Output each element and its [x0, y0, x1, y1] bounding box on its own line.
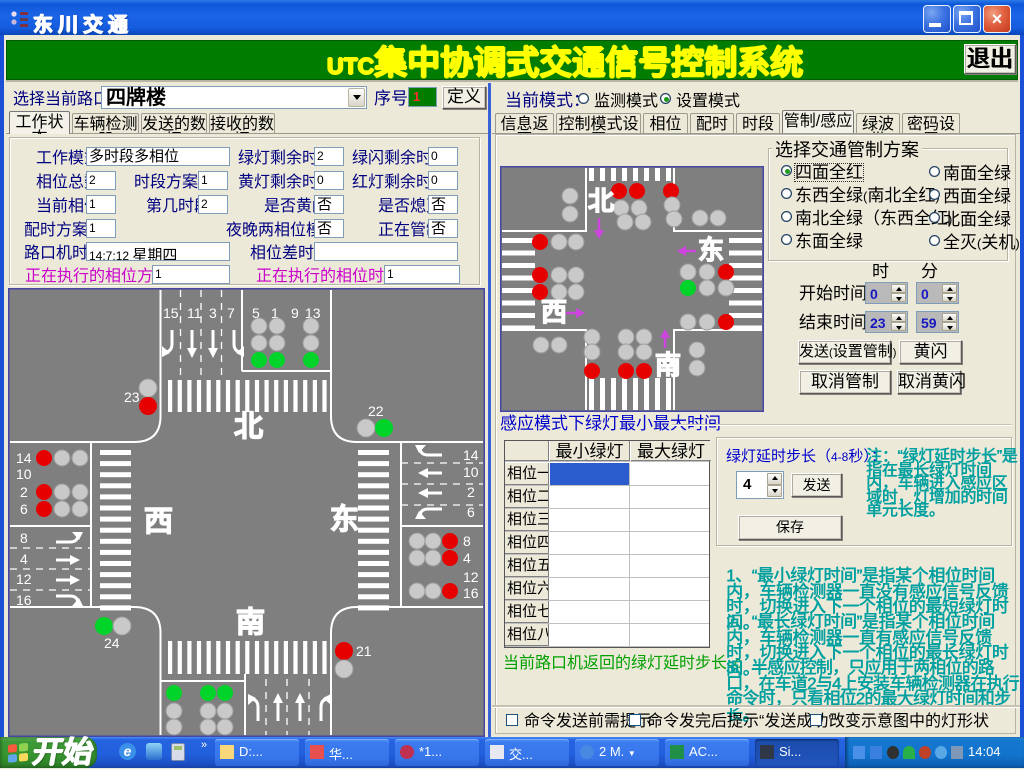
svg-text:12: 12	[463, 569, 479, 585]
svg-text:16: 16	[16, 592, 32, 608]
svg-text:10: 10	[463, 464, 479, 480]
svg-text:东: 东	[330, 502, 359, 536]
svg-text:北: 北	[588, 186, 614, 216]
svg-text:8: 8	[463, 533, 471, 549]
svg-text:2: 2	[20, 484, 28, 500]
svg-text:北: 北	[234, 410, 263, 443]
svg-text:22: 22	[368, 403, 384, 419]
svg-text:西: 西	[144, 506, 173, 538]
svg-text:23: 23	[124, 389, 140, 405]
svg-text:3: 3	[209, 305, 217, 321]
svg-text:4: 4	[463, 550, 471, 566]
svg-text:6: 6	[20, 501, 28, 517]
svg-text:14: 14	[16, 450, 32, 466]
svg-text:15: 15	[163, 305, 179, 321]
svg-text:6: 6	[467, 504, 475, 520]
svg-text:7: 7	[227, 305, 235, 321]
svg-text:8: 8	[20, 530, 28, 546]
svg-text:10: 10	[16, 466, 32, 482]
svg-text:21: 21	[356, 643, 372, 659]
svg-text:南: 南	[236, 606, 265, 639]
svg-text:12: 12	[16, 571, 32, 587]
svg-text:东: 东	[698, 235, 724, 265]
svg-text:16: 16	[463, 585, 479, 601]
svg-text:14: 14	[463, 447, 479, 463]
svg-text:2: 2	[467, 484, 475, 500]
svg-text:9: 9	[291, 305, 299, 321]
svg-text:24: 24	[104, 635, 120, 651]
svg-text:4: 4	[20, 551, 28, 567]
svg-text:11: 11	[187, 305, 202, 321]
svg-text:西: 西	[541, 297, 567, 327]
svg-text:南: 南	[655, 350, 681, 380]
